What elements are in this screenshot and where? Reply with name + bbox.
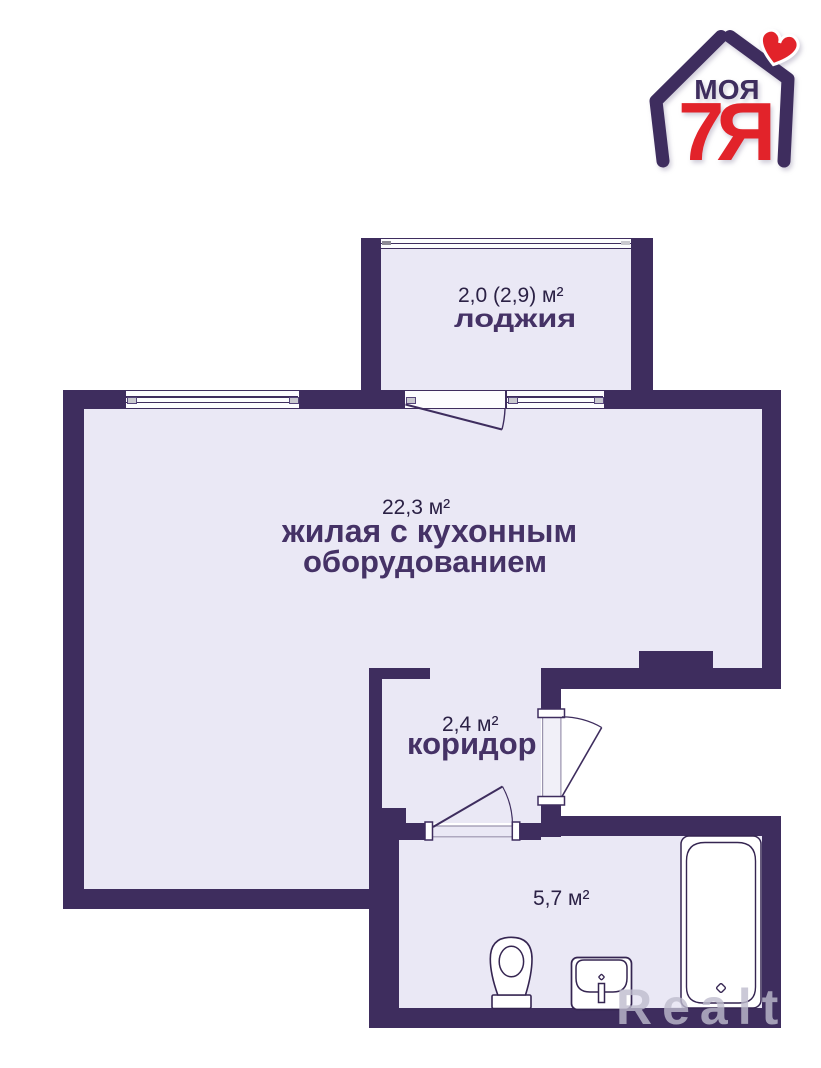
svg-text:7Я: 7Я xyxy=(678,85,771,178)
